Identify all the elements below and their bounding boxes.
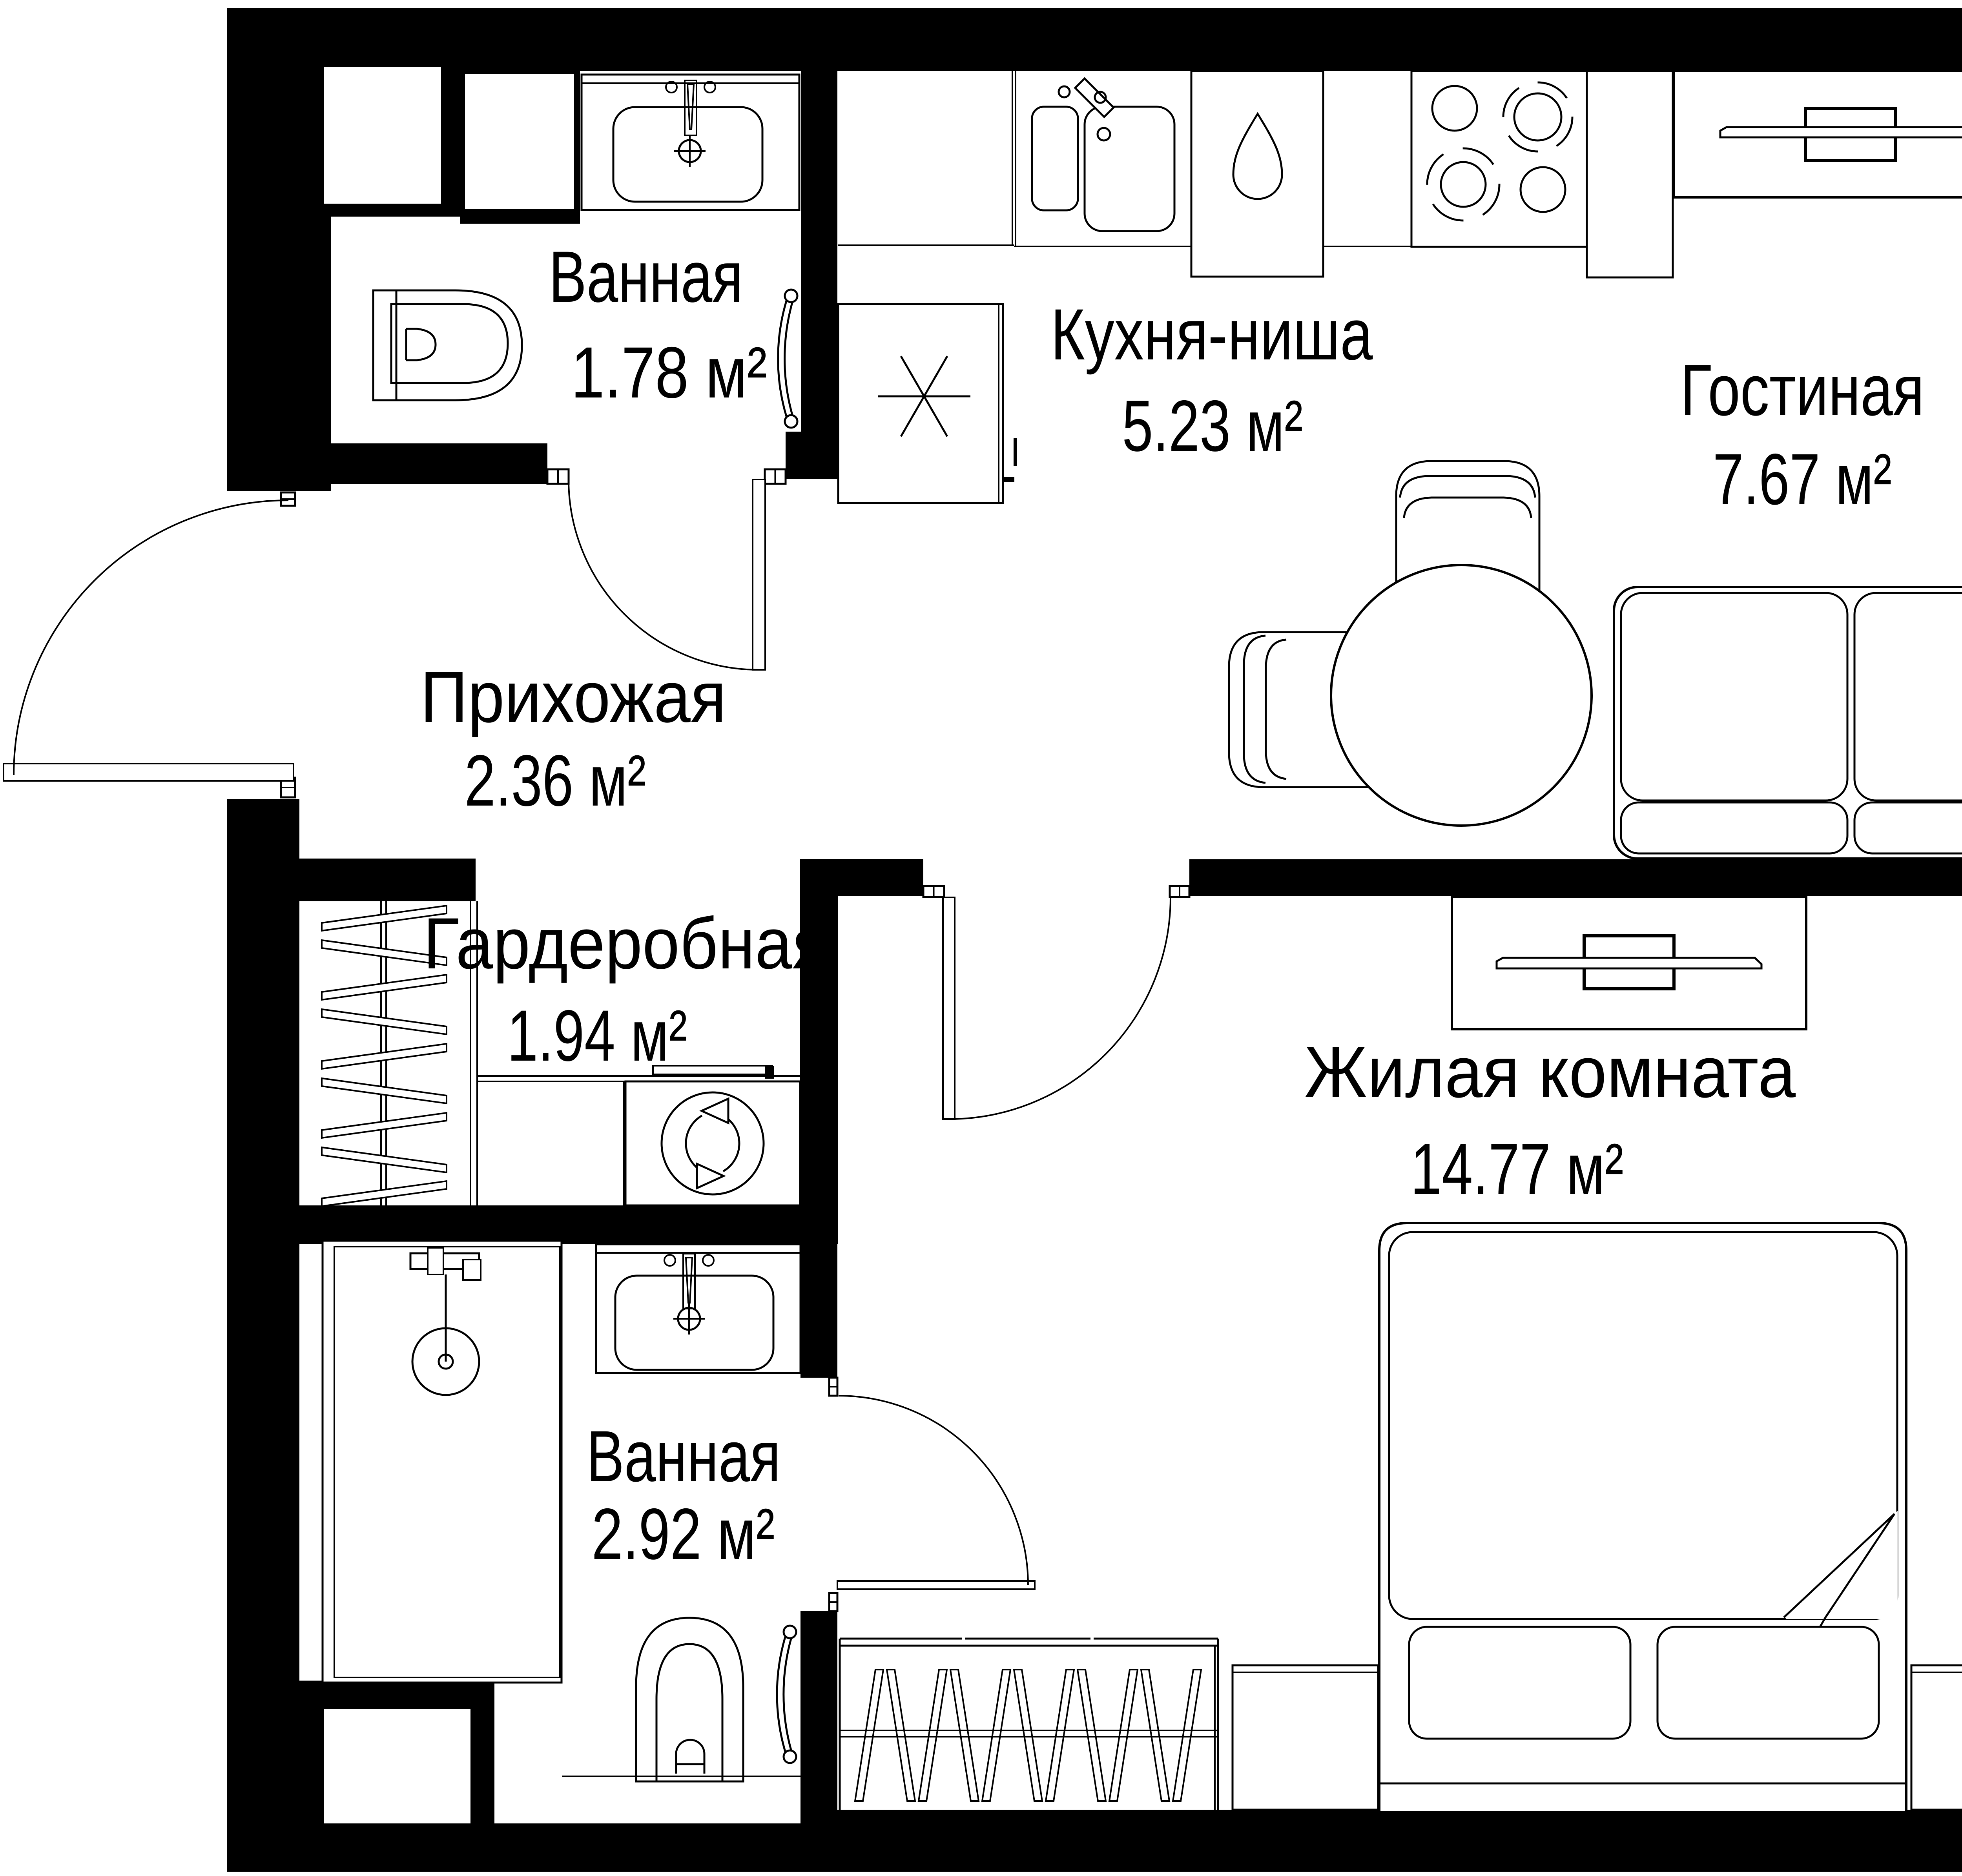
svg-text:5.23 м²: 5.23 м² <box>1122 386 1303 467</box>
svg-text:2.36 м²: 2.36 м² <box>465 740 646 821</box>
svg-text:14.77 м²: 14.77 м² <box>1411 1129 1624 1210</box>
svg-text:1.94 м²: 1.94 м² <box>507 995 687 1076</box>
svg-text:Жилая комната: Жилая комната <box>1304 1032 1796 1113</box>
svg-text:2.92 м²: 2.92 м² <box>592 1494 775 1575</box>
svg-text:Ванная: Ванная <box>587 1416 781 1497</box>
svg-text:Гардеробная: Гардеробная <box>423 903 829 984</box>
svg-text:Кухня-ниша: Кухня-ниша <box>1051 294 1373 375</box>
svg-text:1.78 м²: 1.78 м² <box>571 332 767 413</box>
svg-text:Прихожая: Прихожая <box>420 657 726 738</box>
svg-text:Гостиная: Гостиная <box>1680 350 1924 431</box>
svg-text:Ванная: Ванная <box>549 237 743 317</box>
svg-text:7.67 м²: 7.67 м² <box>1713 439 1892 520</box>
